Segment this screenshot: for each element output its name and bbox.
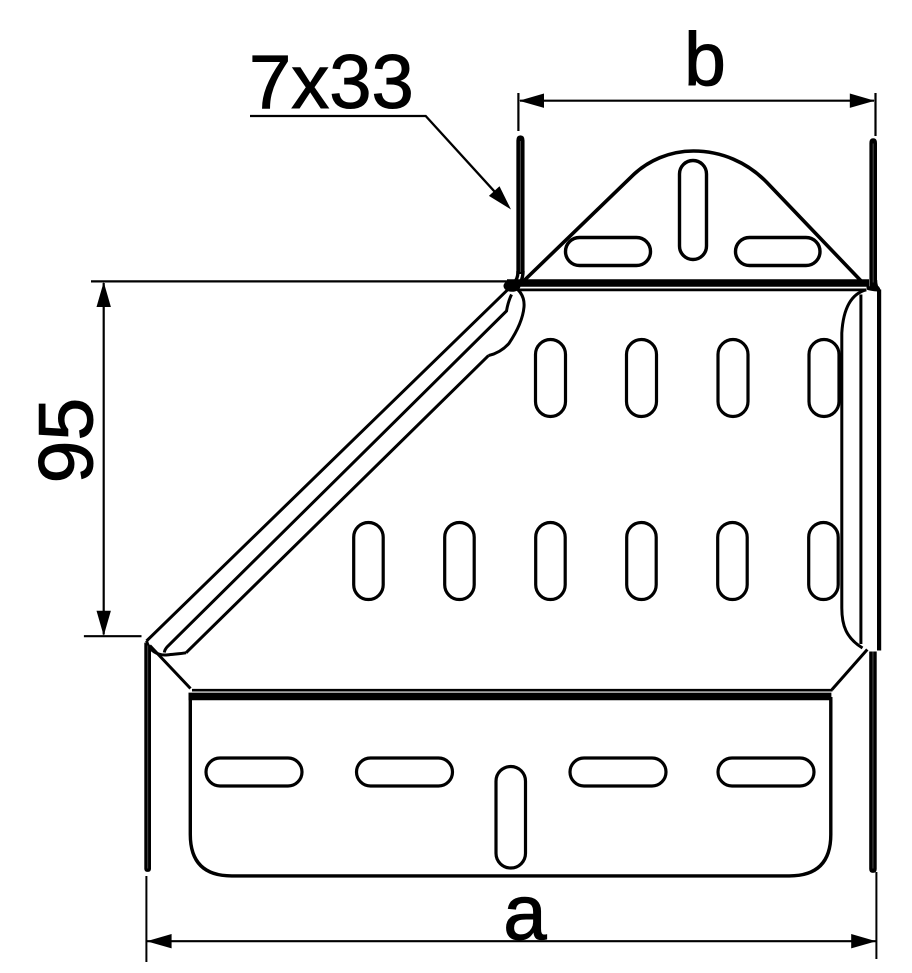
svg-text:a: a bbox=[503, 868, 547, 956]
svg-text:7x33: 7x33 bbox=[249, 40, 414, 125]
svg-text:b: b bbox=[684, 17, 726, 101]
svg-text:95: 95 bbox=[24, 398, 110, 484]
